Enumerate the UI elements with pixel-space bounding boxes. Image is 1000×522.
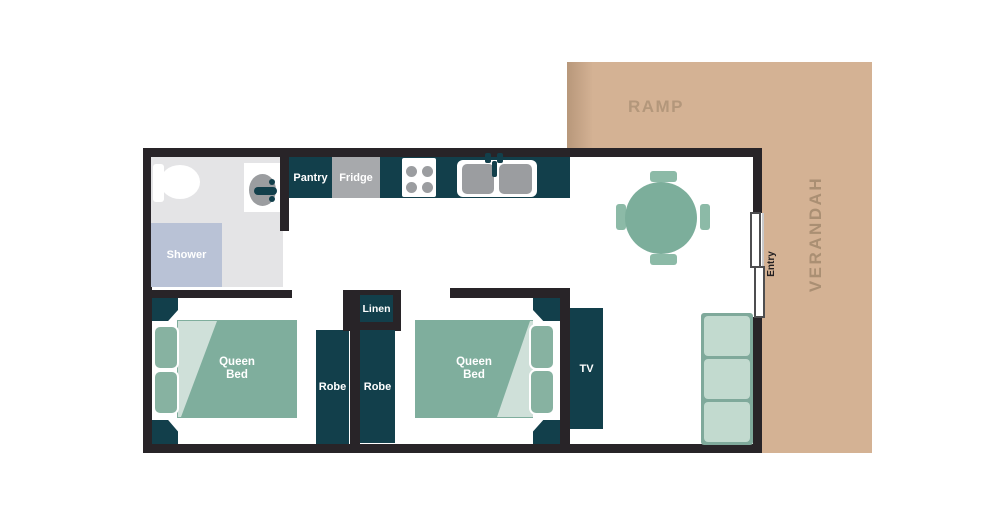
bedroom2-wall-right	[560, 288, 570, 444]
couch	[701, 313, 753, 445]
sink-tap-handle-right	[497, 153, 503, 163]
bed2-label-zone: Queen Bed	[415, 320, 533, 418]
dining-chair-south	[650, 254, 677, 265]
dining-chair-north	[650, 171, 677, 182]
stove-burner-3	[406, 182, 417, 193]
pantry-unit: Pantry	[289, 157, 332, 198]
bed2-pillow-top	[531, 326, 553, 368]
bed1-pillow-top	[155, 327, 177, 368]
wall-right-upper	[753, 148, 762, 213]
wall-top	[143, 148, 762, 157]
linen-label: Linen	[363, 303, 391, 315]
robe2-label: Robe	[364, 381, 392, 393]
couch-cushion-2	[704, 359, 750, 399]
stove-burner-2	[422, 166, 433, 177]
sink-basin-right	[499, 164, 532, 194]
bed1-bedside-bottom	[152, 420, 178, 444]
robe2: Robe	[360, 330, 395, 443]
couch-cushion-1	[704, 316, 750, 356]
stove-burner-4	[422, 182, 433, 193]
sink-tap-handle-left	[485, 153, 491, 163]
fridge: Fridge	[332, 157, 380, 198]
robe1-label: Robe	[319, 381, 347, 393]
linen-shelf: Linen	[360, 295, 393, 322]
pantry-label: Pantry	[293, 172, 327, 184]
stove	[402, 158, 436, 197]
vanity-tap-dot-top	[269, 179, 275, 185]
dining-chair-east	[700, 204, 710, 230]
bed2-bedside-top	[533, 298, 560, 321]
shower-label: Shower	[167, 249, 207, 261]
bathroom-wall-bottom	[143, 290, 292, 298]
verandah-label: VERANDAH	[806, 154, 826, 314]
bed2-bedside-bottom	[533, 420, 560, 444]
tv-label: TV	[579, 363, 593, 375]
robe1: Robe	[316, 330, 349, 444]
sink-tap-spout	[492, 161, 497, 177]
sink	[457, 160, 537, 197]
dining-table	[625, 182, 697, 254]
bed2-pillow-bottom	[531, 371, 553, 413]
couch-cushion-3	[704, 402, 750, 442]
stove-burner-1	[406, 166, 417, 177]
tv-unit: TV	[570, 308, 603, 429]
bed1-label: Queen Bed	[207, 356, 267, 382]
bathroom-wall-right	[280, 157, 289, 231]
entry-door-panel-2	[754, 266, 765, 318]
shower-pad: Shower	[151, 223, 222, 287]
bed2-label: Queen Bed	[444, 356, 504, 382]
floorplan-canvas: RAMP VERANDAH Shower Pantry Fridge	[0, 0, 1000, 522]
vanity-tap	[254, 187, 277, 195]
fridge-label: Fridge	[339, 172, 373, 184]
bedroom2-wall-top	[450, 288, 570, 298]
entry-door-panel-1	[750, 212, 761, 268]
bed1-label-zone: Queen Bed	[177, 320, 297, 418]
bed1-pillow-bottom	[155, 372, 177, 413]
entry-label: Entry	[765, 239, 777, 289]
toilet-bowl	[160, 165, 200, 199]
sink-basin-left	[462, 164, 494, 194]
wall-right-lower	[753, 317, 762, 453]
ramp-label: RAMP	[606, 97, 706, 117]
bed1-bedside-top	[152, 298, 178, 321]
vanity-tap-dot-bottom	[269, 196, 275, 202]
wall-bottom	[143, 444, 762, 453]
